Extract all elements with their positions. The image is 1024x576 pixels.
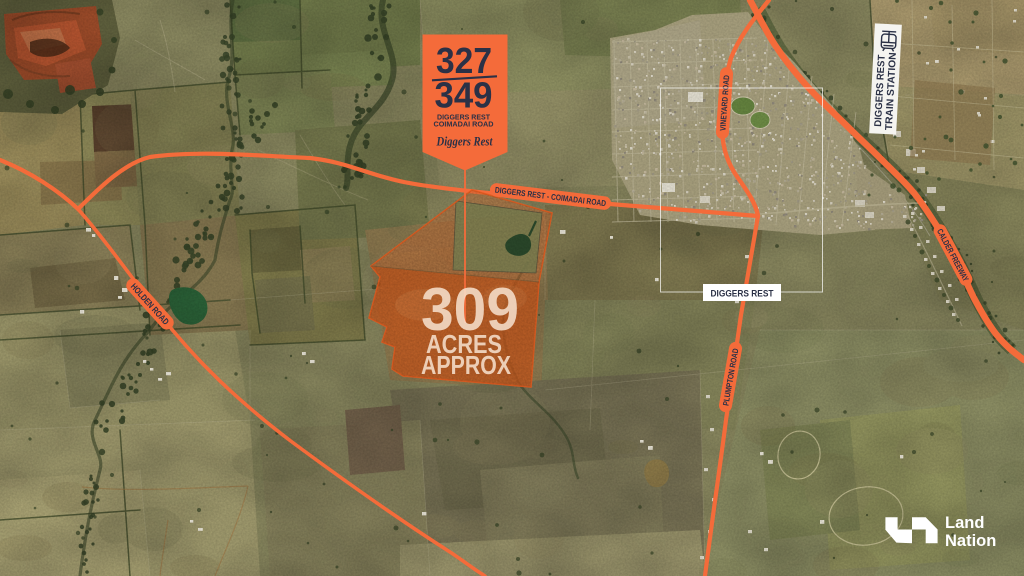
svg-text:Land: Land — [945, 514, 984, 532]
svg-text:349: 349 — [435, 75, 493, 116]
svg-text:APPROX: APPROX — [421, 350, 512, 380]
svg-text:Nation: Nation — [945, 532, 996, 550]
svg-text:Diggers Rest: Diggers Rest — [436, 135, 493, 149]
svg-text:COIMADAI ROAD: COIMADAI ROAD — [434, 120, 494, 129]
svg-text:DIGGERS REST: DIGGERS REST — [711, 289, 774, 300]
